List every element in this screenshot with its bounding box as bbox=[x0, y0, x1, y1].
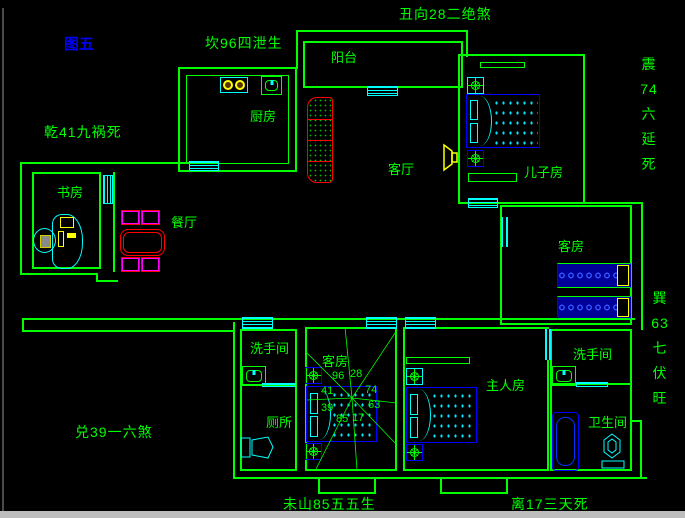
nightstand bbox=[406, 444, 423, 461]
pillow bbox=[410, 394, 418, 415]
wall-segment bbox=[20, 162, 190, 164]
closet-shelf bbox=[480, 62, 525, 68]
dining-table bbox=[120, 229, 165, 256]
wall-segment bbox=[440, 492, 508, 494]
washroom-sink bbox=[242, 366, 266, 386]
nightstand-icon bbox=[468, 78, 483, 93]
faucet-icon bbox=[253, 370, 256, 375]
room-label-dining: 餐厅 bbox=[171, 216, 197, 230]
room-label-bathroom: 卫生间 bbox=[588, 416, 627, 430]
nightstand-icon bbox=[407, 369, 422, 384]
wall-segment bbox=[374, 477, 376, 494]
room-balcony bbox=[303, 41, 463, 88]
closet-shelf bbox=[468, 173, 517, 182]
mattress bbox=[431, 391, 475, 441]
fengshui-label-west: 兑39一六煞 bbox=[75, 425, 153, 439]
wall-segment bbox=[113, 172, 115, 272]
compass-number: 96 bbox=[332, 371, 344, 382]
compass-number: 41 bbox=[321, 386, 333, 397]
fengshui-label-northeast: 丑向28二绝煞 bbox=[399, 7, 492, 21]
window-edge bbox=[2, 8, 4, 511]
compass-number: 63 bbox=[368, 400, 380, 411]
wall-segment bbox=[641, 202, 643, 330]
nightstand-icon bbox=[407, 445, 422, 460]
fengshui-label-east-lower: 巽 63 七 伏 旺 bbox=[648, 286, 672, 411]
toilet-icon bbox=[599, 432, 627, 472]
wall-segment bbox=[318, 492, 376, 494]
fengshui-label-northwest: 乾41九祸死 bbox=[44, 125, 122, 139]
stove bbox=[220, 77, 248, 93]
room-label-kitchen: 厨房 bbox=[250, 110, 276, 124]
wall-segment bbox=[632, 420, 642, 422]
status-bar bbox=[0, 511, 685, 518]
kitchen-sink bbox=[261, 76, 282, 95]
blanket-fold bbox=[480, 96, 492, 146]
sofa-cushion-divider bbox=[308, 119, 332, 120]
room-label-guest-right: 客房 bbox=[558, 240, 584, 254]
door bbox=[545, 329, 551, 360]
pillow bbox=[470, 123, 478, 143]
door-hatch bbox=[103, 175, 113, 204]
door bbox=[501, 217, 508, 247]
study-chair-seat bbox=[40, 235, 51, 248]
nightstand bbox=[467, 77, 484, 94]
wall-segment bbox=[96, 280, 118, 282]
room-label-study: 书房 bbox=[57, 186, 83, 200]
wall-segment bbox=[583, 202, 643, 204]
fengshui-label-east-upper: 震 74 六 延 死 bbox=[637, 52, 661, 177]
compass-number: 39 bbox=[321, 403, 333, 414]
fengshui-label-south: 离17三天死 bbox=[511, 497, 589, 511]
sofa-cushion-divider bbox=[308, 140, 332, 141]
guest-bed bbox=[557, 263, 631, 288]
dining-chair bbox=[142, 258, 159, 271]
compass-lines bbox=[303, 325, 399, 473]
burner-icon bbox=[223, 80, 233, 90]
guest-bed bbox=[557, 296, 631, 319]
wall-segment bbox=[296, 30, 468, 32]
room-label-guest-bottom: 客房 bbox=[322, 355, 348, 369]
pillow bbox=[617, 265, 629, 286]
desk-keyboard bbox=[67, 233, 76, 238]
wall-segment bbox=[22, 330, 235, 332]
nightstand bbox=[406, 368, 423, 385]
room-label-living: 客厅 bbox=[388, 163, 414, 177]
wall-segment bbox=[640, 420, 642, 479]
bed bbox=[466, 94, 540, 148]
wall-segment bbox=[296, 30, 298, 69]
wall-lamp-icon bbox=[441, 144, 461, 172]
room-label-washroom-left: 洗手间 bbox=[250, 342, 289, 356]
dining-chair bbox=[122, 211, 139, 224]
bathtub bbox=[552, 412, 579, 471]
mattress bbox=[493, 98, 538, 145]
blanket-fold bbox=[419, 389, 431, 441]
bed bbox=[406, 387, 477, 443]
toilet-icon bbox=[240, 434, 276, 462]
room-label-toilet: 厕所 bbox=[266, 416, 292, 430]
faucet-icon bbox=[270, 80, 273, 85]
burner-icon bbox=[235, 80, 245, 90]
wall-segment bbox=[233, 322, 235, 479]
closet-shelf bbox=[406, 357, 470, 364]
room-label-washroom-right: 洗手间 bbox=[573, 348, 612, 362]
compass-number: 17 bbox=[352, 413, 364, 424]
window bbox=[468, 198, 498, 208]
pillow bbox=[410, 417, 418, 438]
floor-plan-canvas: 96 28 41 74 39 63 85 17 厨房 阳台 客厅 儿子房 书房 … bbox=[0, 0, 685, 518]
room-label-master: 主人房 bbox=[486, 379, 525, 393]
window bbox=[242, 317, 273, 329]
fengshui-label-north: 坎96四泄生 bbox=[205, 36, 283, 50]
dining-chair bbox=[122, 258, 139, 271]
fengshui-label-southwest: 未山85五五生 bbox=[283, 497, 376, 511]
window bbox=[576, 382, 608, 387]
faucet-icon bbox=[563, 370, 566, 375]
window bbox=[189, 161, 219, 171]
wall-segment bbox=[20, 162, 22, 275]
desk-monitor bbox=[60, 217, 74, 228]
window bbox=[367, 86, 398, 96]
window bbox=[405, 317, 436, 329]
sofa-cushion-divider bbox=[308, 161, 332, 162]
pillow bbox=[470, 100, 478, 120]
nightstand-icon bbox=[468, 151, 483, 166]
compass-number: 85 bbox=[336, 414, 348, 425]
window bbox=[262, 383, 296, 387]
wall-segment bbox=[20, 273, 98, 275]
compass-number: 74 bbox=[365, 385, 377, 396]
compass-number: 28 bbox=[350, 369, 362, 380]
nightstand bbox=[467, 150, 484, 167]
wall-segment bbox=[506, 477, 508, 494]
room-label-balcony: 阳台 bbox=[331, 51, 357, 65]
dining-chair bbox=[142, 211, 159, 224]
pillow bbox=[617, 298, 629, 317]
washroom-sink bbox=[552, 366, 576, 386]
sofa bbox=[307, 97, 333, 183]
room-label-sons: 儿子房 bbox=[524, 166, 563, 180]
wall-segment bbox=[466, 30, 468, 57]
desk-tower bbox=[58, 231, 64, 247]
figure-label: 图五 bbox=[64, 38, 94, 52]
